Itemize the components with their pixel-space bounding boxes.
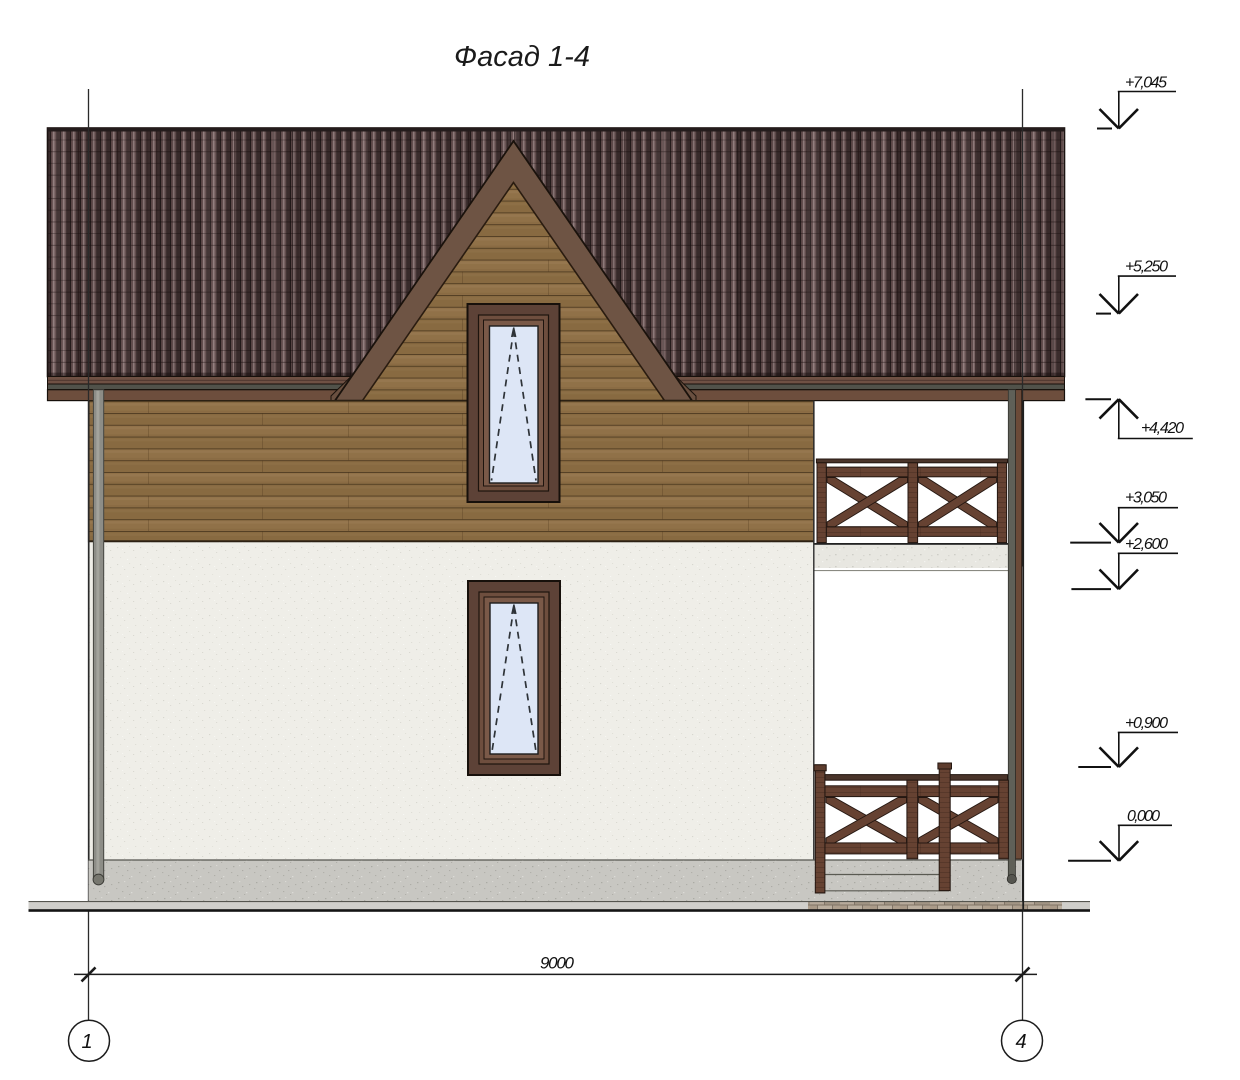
svg-text:+4,420: +4,420 bbox=[1141, 420, 1184, 437]
svg-text:+0,900: +0,900 bbox=[1125, 715, 1168, 732]
svg-text:+2,600: +2,600 bbox=[1125, 536, 1168, 553]
svg-text:+7,045: +7,045 bbox=[1125, 75, 1167, 92]
svg-text:Фасад 1-4: Фасад 1-4 bbox=[454, 41, 590, 73]
svg-text:+3,050: +3,050 bbox=[1125, 490, 1167, 507]
svg-text:+5,250: +5,250 bbox=[1125, 259, 1168, 276]
svg-text:1: 1 bbox=[81, 1031, 92, 1053]
svg-text:4: 4 bbox=[1015, 1031, 1026, 1053]
svg-text:0,000: 0,000 bbox=[1127, 808, 1160, 825]
svg-text:9000: 9000 bbox=[540, 954, 575, 973]
